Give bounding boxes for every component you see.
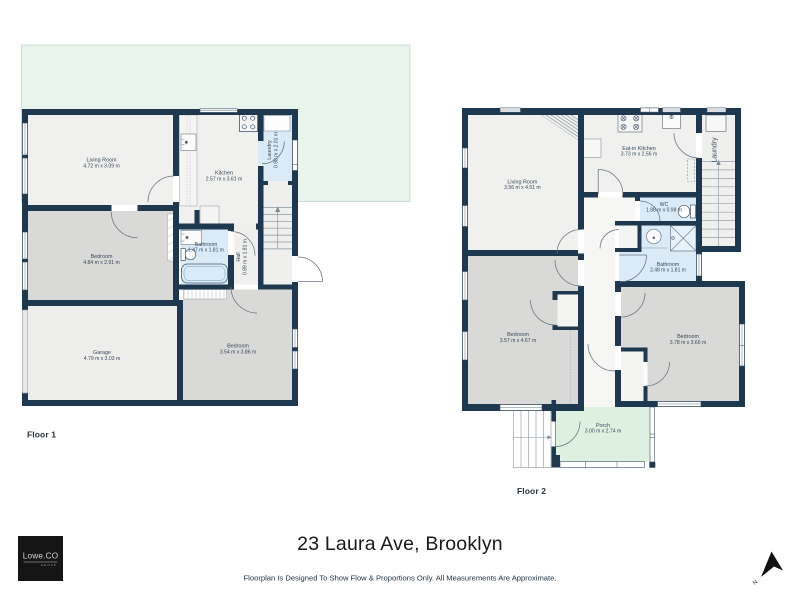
svg-text:0.98 m x 2.01 m: 0.98 m x 2.01 m: [274, 132, 280, 168]
svg-text:3.73 m x 2.56 m: 3.73 m x 2.56 m: [621, 152, 658, 158]
svg-text:Hall: Hall: [236, 253, 242, 262]
svg-text:3.54 m x 3.86 m: 3.54 m x 3.86 m: [220, 349, 257, 355]
svg-text:23 Laura Ave, Brooklyn: 23 Laura Ave, Brooklyn: [297, 533, 503, 555]
svg-text:N: N: [752, 579, 759, 586]
svg-text:3.78 m x 3.66 m: 3.78 m x 3.66 m: [670, 340, 707, 346]
svg-text:Floor 1: Floor 1: [27, 430, 56, 440]
svg-text:Lowe.CO: Lowe.CO: [23, 552, 59, 561]
svg-text:4.72 m x 3.09 m: 4.72 m x 3.09 m: [83, 163, 120, 169]
svg-text:2.48 m x 1.81 m: 2.48 m x 1.81 m: [650, 268, 686, 274]
svg-text:3.00 m x 2.74 m: 3.00 m x 2.74 m: [585, 429, 622, 435]
svg-text:GROUP: GROUP: [41, 563, 57, 567]
svg-text:Floorplan Is Designed To Show: Floorplan Is Designed To Show Flow & Pro…: [244, 573, 557, 582]
svg-text:4.84 m x 2.91 m: 4.84 m x 2.91 m: [83, 260, 120, 266]
svg-text:1.88 m x 0.98 m: 1.88 m x 0.98 m: [646, 208, 682, 214]
svg-text:Laundry: Laundry: [267, 140, 273, 160]
svg-text:0.89 m x 1.81 m: 0.89 m x 1.81 m: [243, 239, 249, 275]
svg-text:2.57 m x 3.61 m: 2.57 m x 3.61 m: [206, 176, 243, 182]
svg-text:3.57 m x 4.67 m: 3.57 m x 4.67 m: [500, 338, 537, 344]
svg-text:Laundry: Laundry: [712, 137, 719, 163]
svg-text:3.56 m x 4.51 m: 3.56 m x 4.51 m: [504, 185, 541, 191]
svg-text:4.79 m x 3.03 m: 4.79 m x 3.03 m: [84, 356, 121, 362]
svg-text:Floor 2: Floor 2: [517, 486, 546, 496]
svg-text:1.47 m x 1.81 m: 1.47 m x 1.81 m: [188, 247, 224, 253]
